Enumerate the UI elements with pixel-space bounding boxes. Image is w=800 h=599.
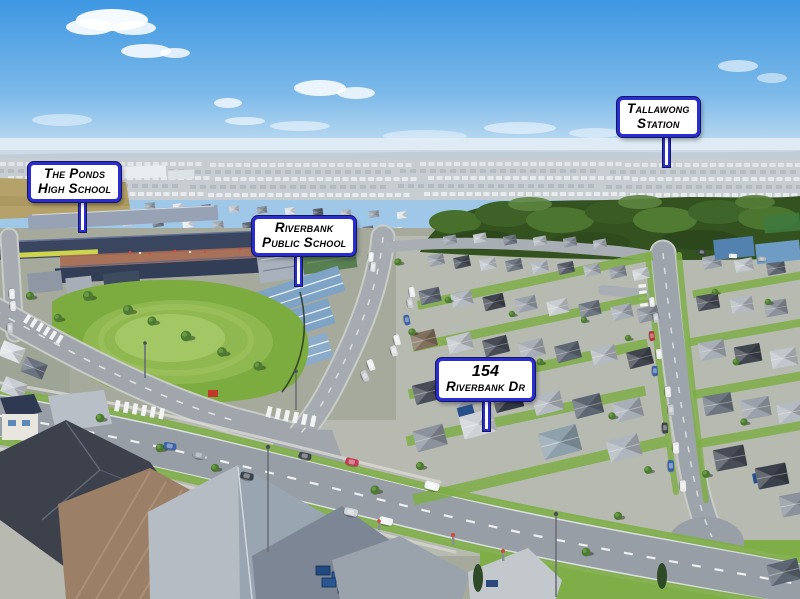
school-zone-sign (208, 390, 218, 397)
aerial-photo: The Ponds High School Riverbank Public S… (0, 0, 800, 599)
callout-property-address: 154 Riverbank Dr (436, 358, 535, 401)
callout-ponds-line1: The Ponds (38, 167, 111, 182)
callout-ponds-high-school: The Ponds High School (28, 162, 121, 202)
callout-tallawong-station: Tallawong Station (617, 97, 700, 137)
scene-painting (0, 0, 800, 599)
callout-address-line2: Riverbank Dr (446, 380, 525, 395)
shade-structure (763, 212, 800, 233)
callout-riverbank-line2: Public School (262, 236, 346, 251)
callout-tallawong-line2: Station (627, 117, 690, 132)
callout-riverbank-public-school: Riverbank Public School (252, 216, 356, 256)
callout-riverbank-line1: Riverbank (262, 221, 346, 236)
callout-address-line1: 154 (446, 363, 525, 380)
callout-ponds-line2: High School (38, 182, 111, 197)
callout-tallawong-line1: Tallawong (627, 102, 690, 117)
